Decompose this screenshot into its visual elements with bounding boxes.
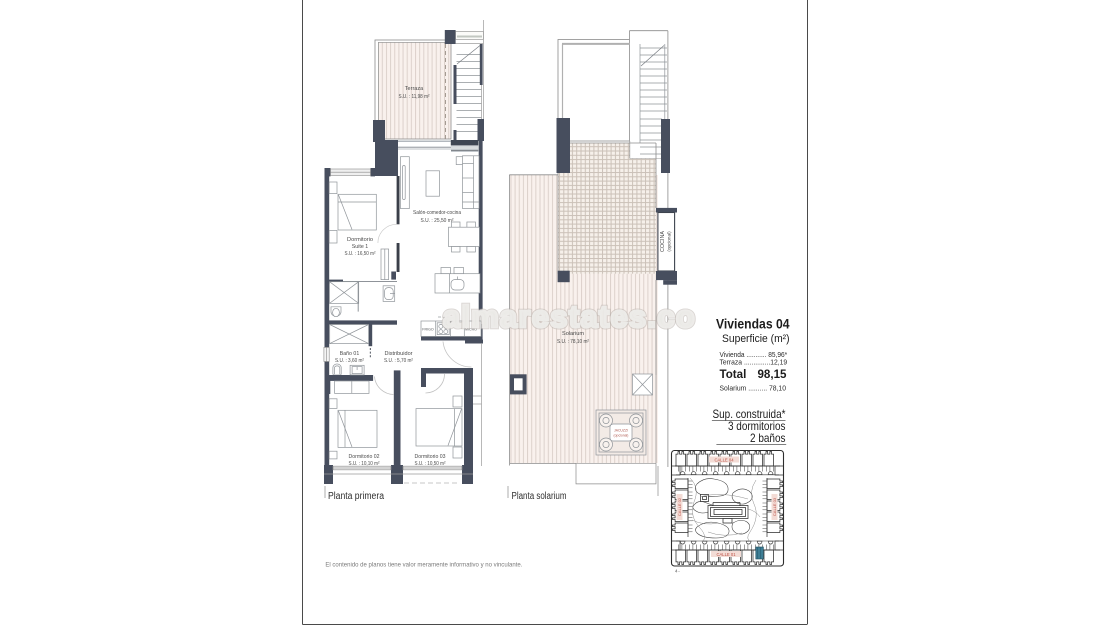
svg-text:Terraza: Terraza xyxy=(405,86,424,92)
svg-text:Dormitorio 03: Dormitorio 03 xyxy=(415,454,446,460)
svg-text:Terraza ..............12,19: Terraza ..............12,19 xyxy=(720,358,788,367)
svg-text:El contenido de planos tiene v: El contenido de planos tiene valor meram… xyxy=(325,562,522,569)
svg-text:S.U. : 10,10 m²: S.U. : 10,10 m² xyxy=(349,461,380,467)
svg-text:JACUZZI: JACUZZI xyxy=(614,429,628,433)
svg-text:Superficie (m²): Superficie (m²) xyxy=(722,333,790,345)
svg-text:Planta solarium: Planta solarium xyxy=(512,491,567,502)
svg-text:Planta primera: Planta primera xyxy=(328,491,384,502)
svg-text:(opcional): (opcional) xyxy=(667,231,672,252)
svg-text:COCINA: COCINA xyxy=(660,231,666,252)
svg-text:CALLE 04: CALLE 04 xyxy=(714,458,734,463)
svg-text:CALLE 01: CALLE 01 xyxy=(716,552,736,557)
svg-text:(opcional): (opcional) xyxy=(614,434,629,438)
svg-text:S.U. : 11,98 m²: S.U. : 11,98 m² xyxy=(399,94,430,100)
svg-text:Dormitorio: Dormitorio xyxy=(347,237,373,243)
svg-text:98,15: 98,15 xyxy=(757,368,787,381)
svg-text:S.U. : 5,70 m²: S.U. : 5,70 m² xyxy=(384,358,413,364)
svg-text:2 baños: 2 baños xyxy=(750,431,786,445)
svg-text:S.U. : 10,50 m²: S.U. : 10,50 m² xyxy=(415,461,446,467)
svg-text:S.U. : 16,50 m²: S.U. : 16,50 m² xyxy=(345,251,376,257)
svg-text:Suite 1: Suite 1 xyxy=(352,244,369,250)
svg-text:Baño 01: Baño 01 xyxy=(340,351,360,357)
svg-text:4··: 4·· xyxy=(675,569,681,574)
svg-text:Viviendas 04: Viviendas 04 xyxy=(716,317,790,332)
svg-text:Salón-comedor-cocina: Salón-comedor-cocina xyxy=(413,210,462,216)
svg-text:S.U. : 25,50 m²: S.U. : 25,50 m² xyxy=(421,218,454,224)
svg-text:Total: Total xyxy=(720,368,747,381)
svg-text:CALLE 02: CALLE 02 xyxy=(677,497,682,516)
svg-text:Distribuidor: Distribuidor xyxy=(385,351,413,357)
svg-text:Solarium .......... 78,10: Solarium .......... 78,10 xyxy=(720,383,787,392)
svg-text:S.U. : 3,60 m²: S.U. : 3,60 m² xyxy=(335,358,364,364)
svg-text:CALLE 03: CALLE 03 xyxy=(772,497,777,516)
svg-text:Dormitorio 02: Dormitorio 02 xyxy=(349,454,380,460)
svg-text:FRIGO: FRIGO xyxy=(422,328,434,332)
svg-text:S.U. : 78,10 m²: S.U. : 78,10 m² xyxy=(557,339,589,345)
svg-text:almarestates.co: almarestates.co xyxy=(443,300,696,334)
